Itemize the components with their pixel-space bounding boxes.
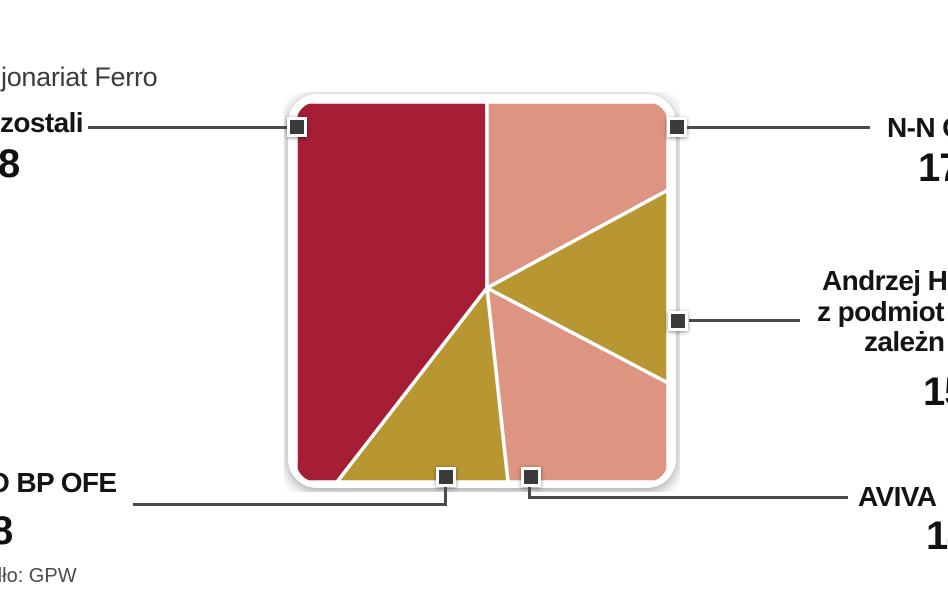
infographic-canvas: jonariat Ferro zostali 8 N-N O 17 Andrze… [0,0,948,593]
label-andrzej-line1: Andrzej H [822,265,947,297]
callout-marker-aviva [521,467,541,487]
pie-chart [284,92,680,492]
label-nn: N-N O [887,112,948,144]
callout-line-nn [687,126,870,129]
callout-line-pozostali [88,126,288,129]
label-andrzej-line2: z podmiot [817,296,944,328]
label-pozostali: zostali [0,107,83,139]
callout-marker-nn [667,117,687,137]
callout-marker-andrzej [668,311,688,331]
source-credit: dło: GPW [0,565,77,588]
label-andrzej-line3: zależn [864,326,944,358]
callout-marker-pozostali [287,117,307,137]
value-nn: 17 [918,148,948,188]
value-andrzej: 15 [923,372,948,412]
value-aviva: 14 [926,516,948,556]
callout-line-aviva-horizontal [528,496,848,499]
callout-line-andrzej [689,319,800,322]
pie-slices [296,102,668,482]
pie-chart-svg [284,92,680,492]
value-pozostali: 8 [0,144,19,184]
callout-marker-pko [436,467,456,487]
label-aviva: AVIVA [858,481,936,513]
value-pko: 8 [0,511,12,551]
callout-line-pko-horizontal [133,503,446,506]
chart-title: jonariat Ferro [1,62,157,93]
label-pko: O BP OFE [0,467,117,499]
